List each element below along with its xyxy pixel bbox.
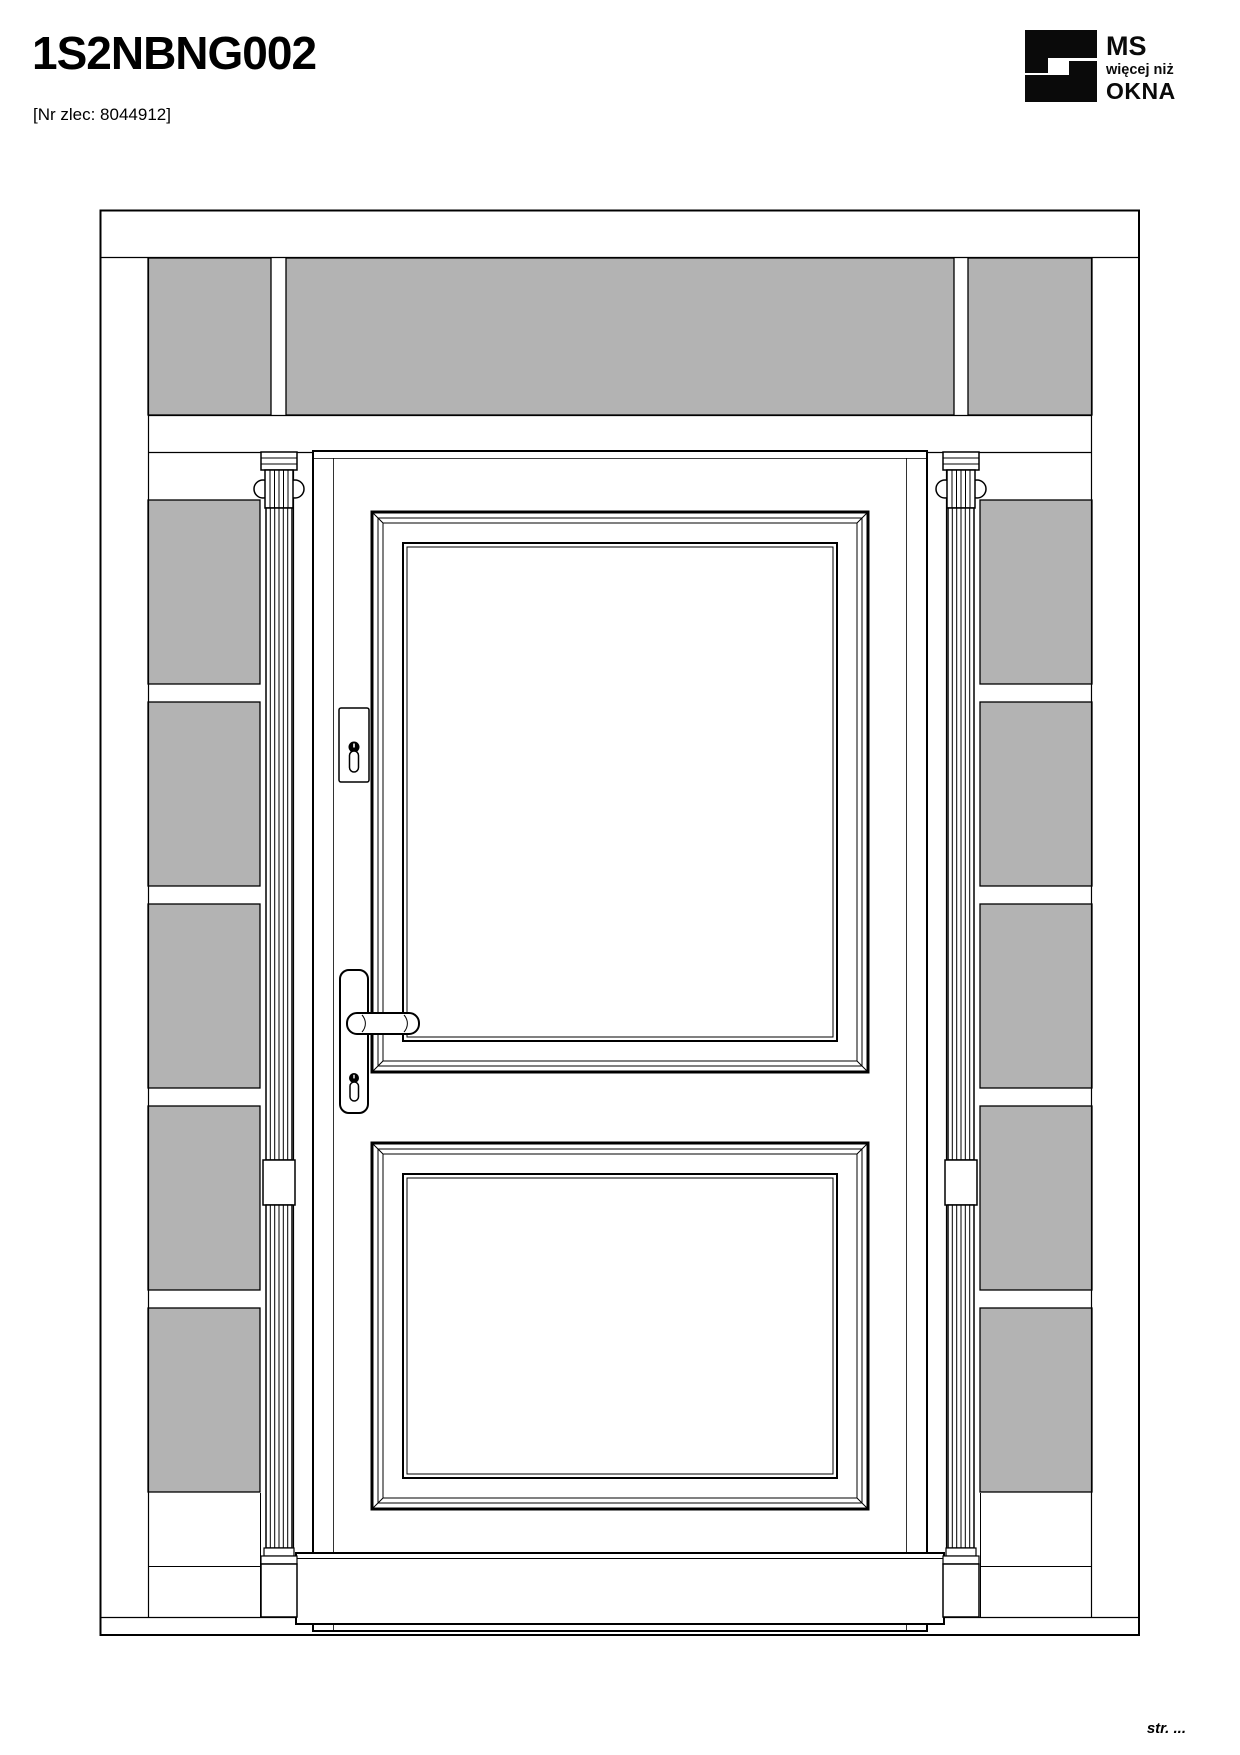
transom-glass-right	[968, 258, 1092, 415]
transom-glass-center	[286, 258, 954, 415]
transom-glass-row	[148, 258, 1092, 415]
sidelight-left-glass	[148, 500, 260, 1492]
door-technical-drawing	[0, 0, 1240, 1755]
sidelight-glass-panel	[980, 1308, 1092, 1492]
door-kick-plate	[296, 1553, 944, 1624]
page-number-label: str. ...	[1147, 1720, 1186, 1737]
handle-lever	[347, 1013, 419, 1034]
sidelight-glass-panel	[148, 1106, 260, 1290]
transom-glass-left	[148, 258, 271, 415]
decorative-column-right	[936, 452, 986, 1617]
sidelight-glass-panel	[980, 904, 1092, 1088]
sidelight-glass-panel	[148, 702, 260, 886]
decorative-column-left	[254, 452, 304, 1617]
sidelight-glass-panel	[980, 500, 1092, 684]
sidelight-glass-panel	[980, 702, 1092, 886]
lock-cylinder-upper	[339, 708, 369, 782]
sidelight-glass-panel	[148, 904, 260, 1088]
sidelight-glass-panel	[148, 1308, 260, 1492]
sidelight-glass-panel	[148, 500, 260, 684]
document-page: 1S2NBNG002 [Nr zlec: 8044912] MS więcej …	[0, 0, 1240, 1755]
sidelight-right-glass	[980, 500, 1092, 1492]
sidelight-glass-panel	[980, 1106, 1092, 1290]
